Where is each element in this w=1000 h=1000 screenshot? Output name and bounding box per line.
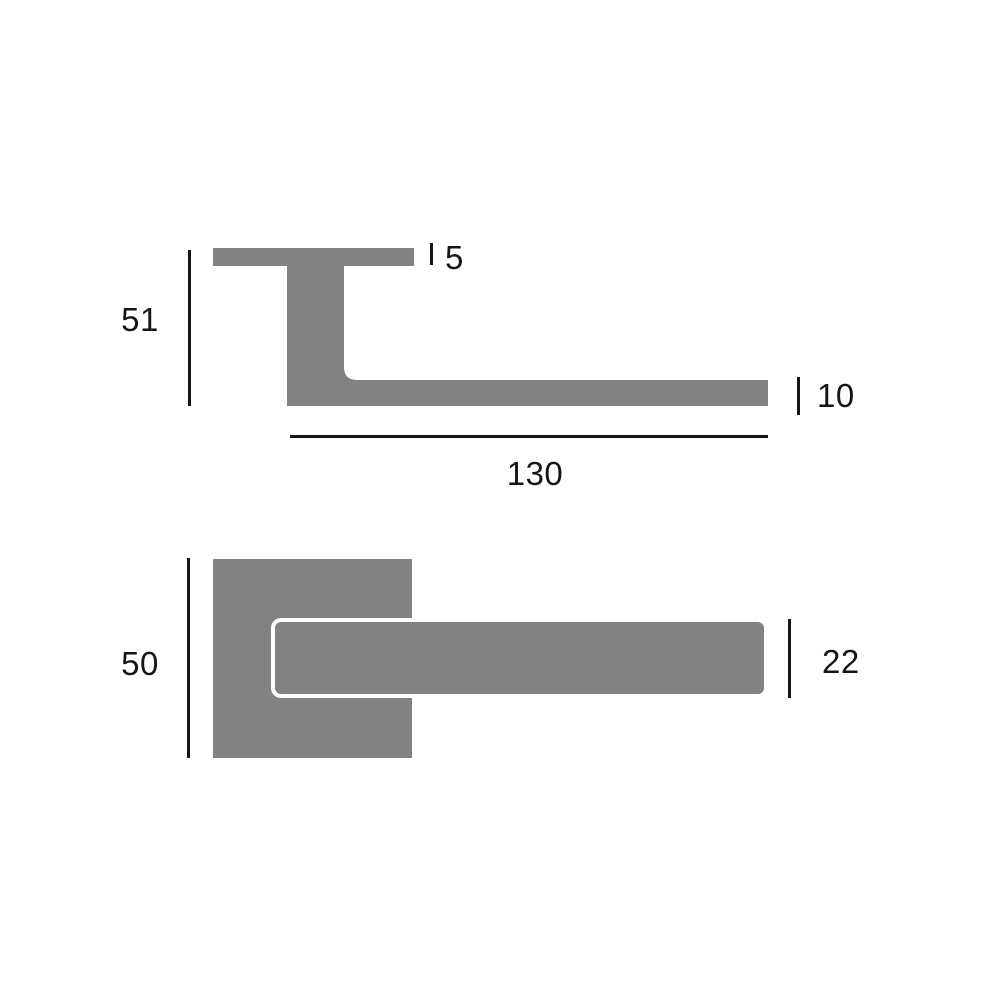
dim-label-height: 51	[110, 303, 170, 336]
dim-label-lever-width: 22	[822, 645, 860, 678]
dim-label-lever-length: 130	[480, 457, 590, 490]
rose-profile-shape	[213, 248, 414, 266]
dim-line-height	[188, 250, 191, 406]
lever-profile-shape	[287, 266, 768, 406]
dim-line-rose-size	[187, 558, 190, 758]
dim-tick-rose-thickness	[430, 243, 433, 265]
dim-label-rose-size: 50	[110, 647, 170, 680]
dim-line-lever-length	[290, 435, 768, 438]
dim-label-rose-thickness: 5	[445, 241, 464, 274]
dim-label-lever-thickness: 10	[817, 379, 855, 412]
dim-tick-lever-width	[788, 619, 791, 698]
dim-tick-lever-thickness	[797, 377, 800, 415]
dimension-drawing: 51 5 130 10 50 22	[0, 0, 1000, 1000]
lever-front-shape	[271, 618, 768, 698]
